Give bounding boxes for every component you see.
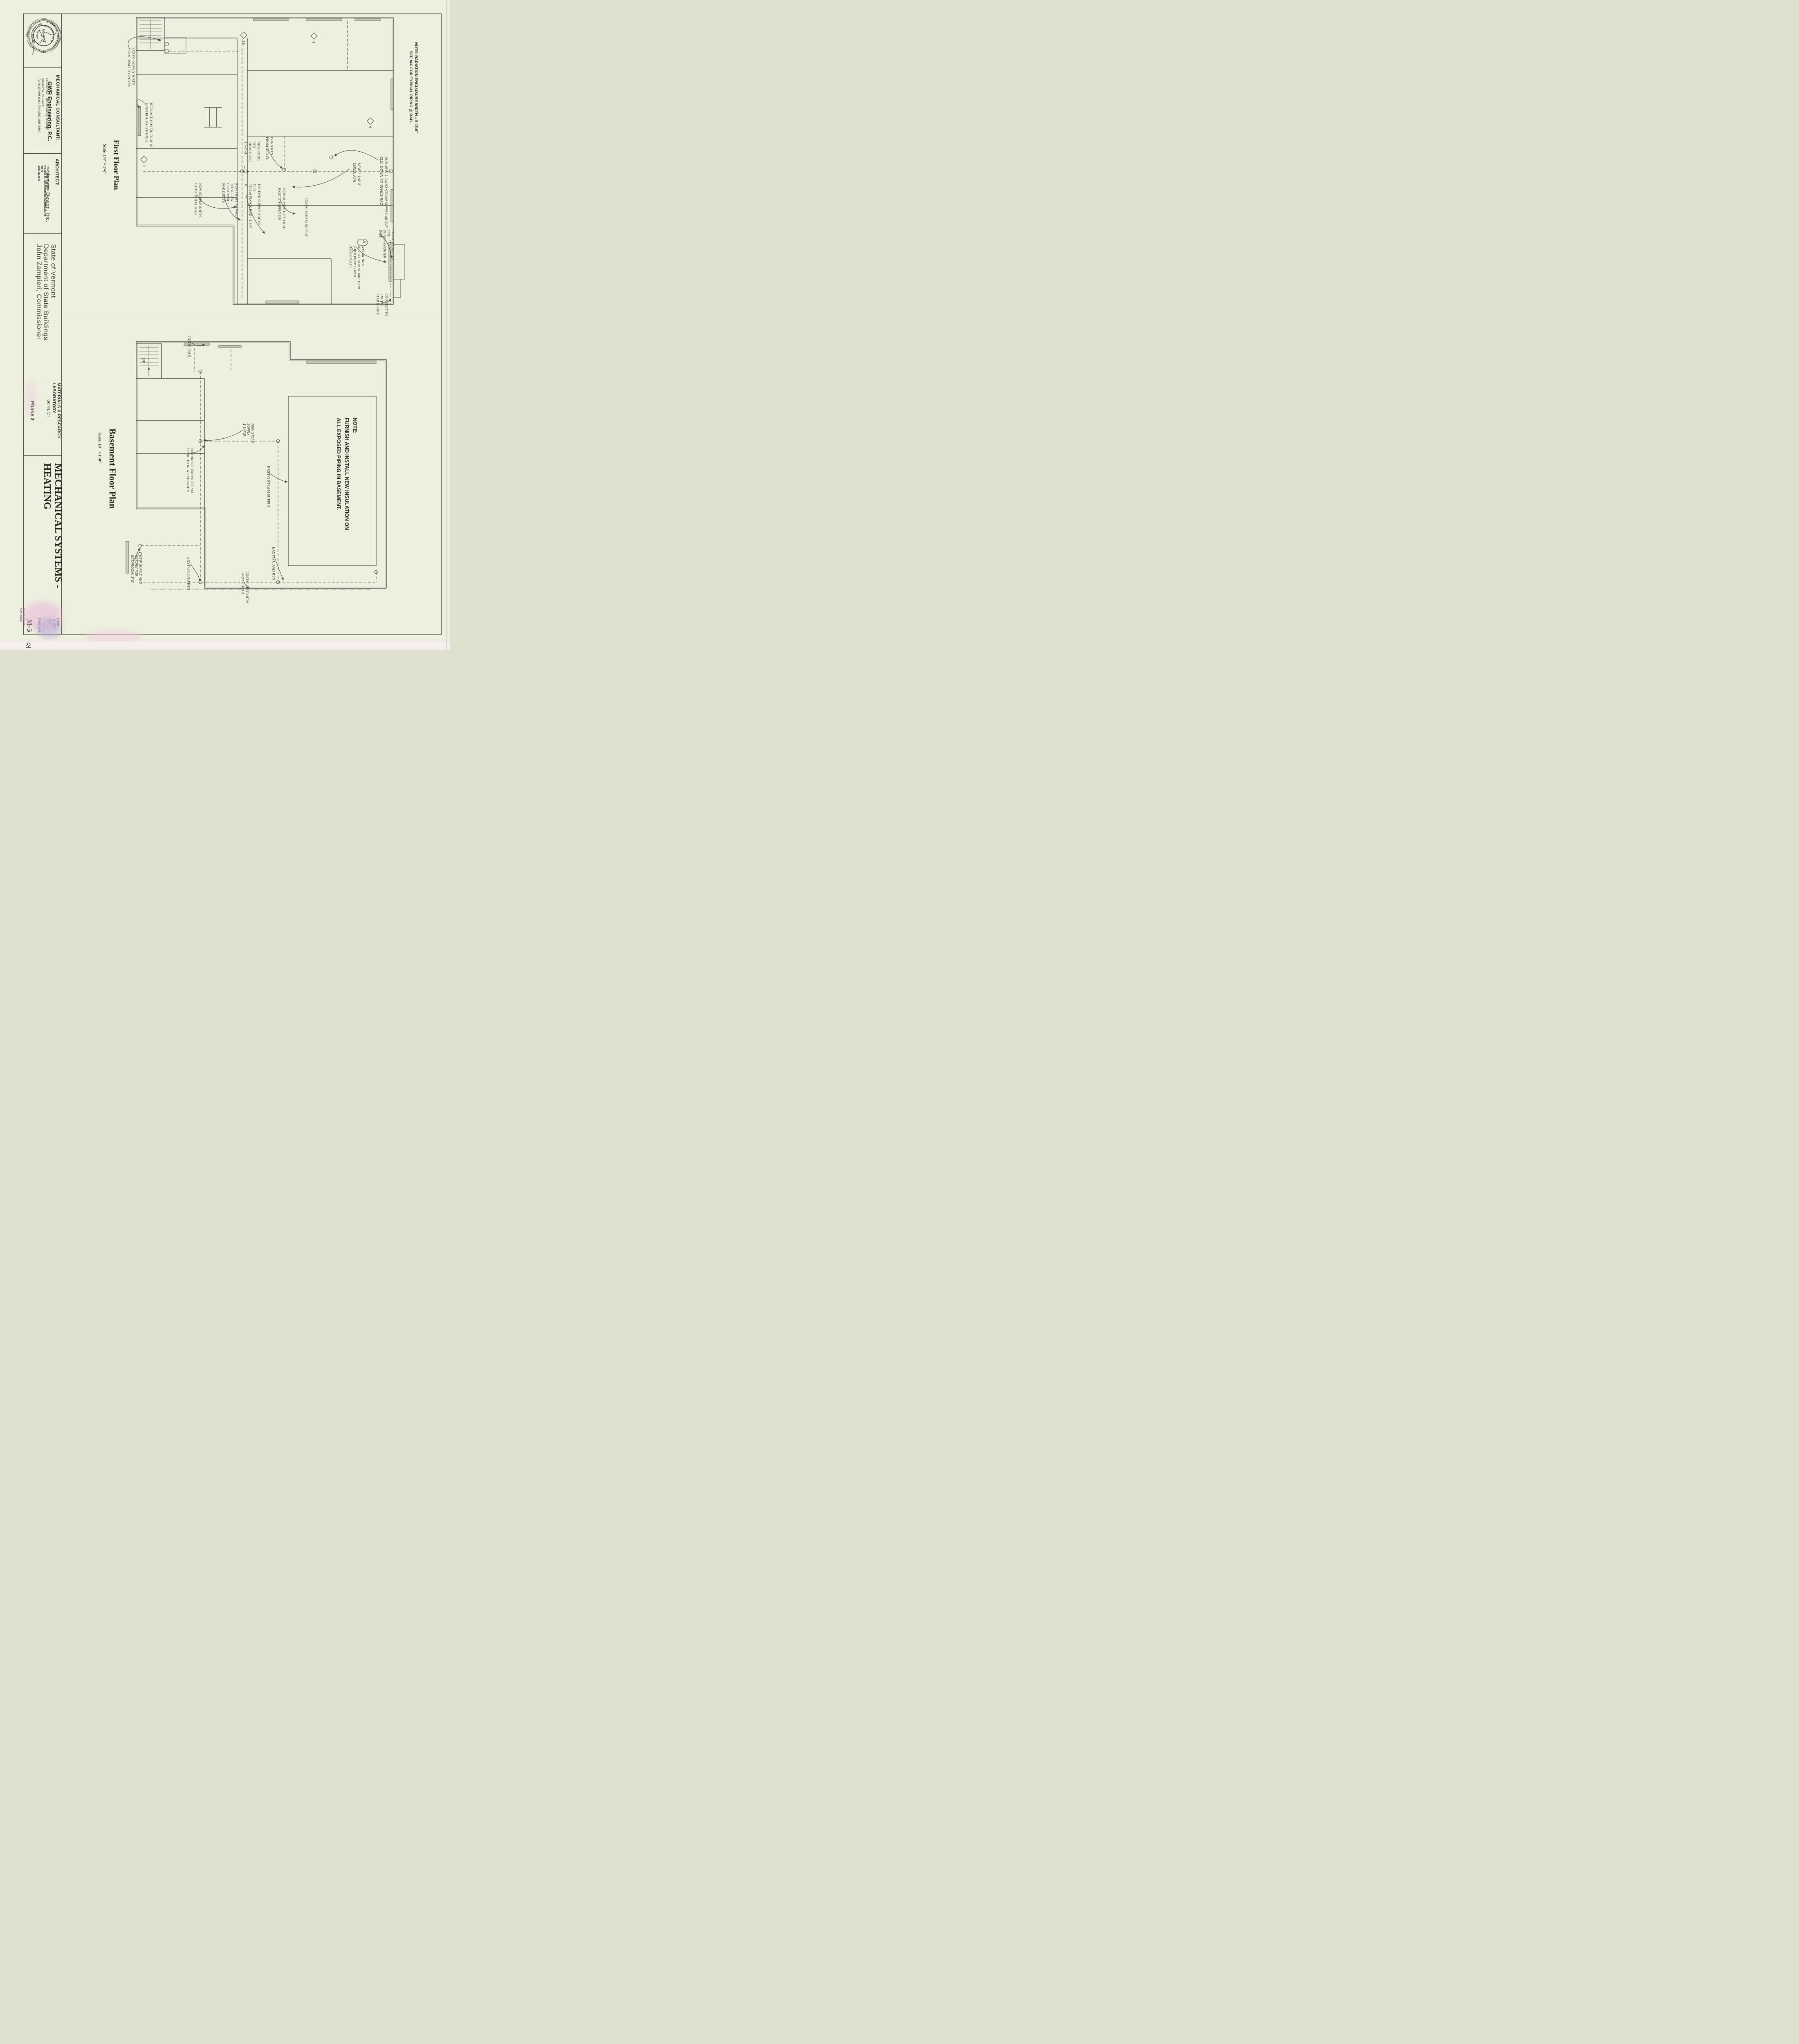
engineer-seal: STATE OF VERMONT PROFESSIONAL ENGINEER G… (26, 18, 62, 54)
project-location: Berlin, VT (46, 399, 51, 429)
ann-2nd-fl-rad: 2ND FL RAD. (187, 336, 191, 366)
ann-new-cond-hand: NEW 1 1/4"Ø COND. RTN. (352, 163, 361, 196)
scan-blob-lavender (37, 618, 62, 639)
radiators (126, 343, 376, 573)
tag-3-label: 3 (141, 164, 146, 171)
ann-reconnect: RECONNECT EXST'G STEAM PIPING TO NEW RAD… (186, 448, 194, 493)
consultant-heading: MECHANICAL CONSULTANT: (55, 75, 60, 145)
ann-run-new-hand: RUN NEW 1 1/4"Ø STEAM SUPPLY ABOVE CLG. … (379, 157, 388, 240)
scan-edge-strip (0, 641, 450, 650)
ann-new-steam: NEW STEAM SUPPLY 1 1/4"Ø (242, 424, 254, 448)
ann-new-supply-rad: NEW SUPPLY UP TO RAD EXST'G SUPPLY DN (278, 188, 286, 231)
leader-arrows (134, 342, 287, 587)
ann-cond-rtn-2: EXST'G COND RTN (271, 547, 276, 588)
architect-heading: ARCHITECT: (54, 159, 59, 204)
ann-cond-rtn-1: EXST'G COND RTN (186, 557, 191, 598)
ann-bm-exstg-steam: EXST'G STEAM SUPPLY (266, 466, 271, 513)
ann-new-cond: NEW COND RTN ABOVE CLG 1 1/4" Ø (244, 141, 261, 168)
walls (136, 341, 386, 588)
sheet-title: MECHANICAL SYSTEMS - HEATING (41, 463, 63, 607)
tag-5-label: 5, (352, 248, 356, 256)
cell-rule-1 (23, 67, 61, 68)
project-name: MATERIALS & RESEARCH LABORATORY (52, 383, 61, 454)
scan-mark (25, 642, 33, 649)
ann-bathroom: NEW SUPPLY AND RETURN FOR BATHROOM; 1"Ø (130, 555, 142, 590)
cell-rule-3 (23, 233, 61, 234)
architect-address: FRED KEIL, ARCHITECT P.O. BOX 55 - BOLTO… (37, 166, 49, 220)
basement-plan (61, 318, 442, 638)
tag-4-label: 4 (311, 41, 315, 47)
tag-18-label: 18 (240, 40, 245, 48)
ann-exstg-steam: EXST'G STEAM SUPPLY (304, 197, 309, 247)
ann-under-slab: EXST'G COND RTN UNDER SLAB (241, 572, 249, 607)
ann-run-tight: RUN TIGHT TO WALL TO ALLOW CLEARANCE FOR… (222, 183, 239, 222)
stair-up-label: UP (141, 358, 146, 367)
tag-a-label: A (362, 240, 366, 247)
ann-cond-rtn-2nd: COND RTN FROM 2ND FL (265, 137, 274, 162)
ann-special-note: SPECIAL NOTE: THIS SECTION OF RAD TO BE … (348, 245, 365, 299)
drawing-sheet: STATE OF VERMONT PROFESSIONAL ENGINEER G… (0, 0, 450, 650)
ann-new-supply-2nd: NEW SUPPLY & RTN UP TO 2ND FL RAD. (194, 183, 202, 223)
scan-edge-line (446, 0, 447, 650)
piping (139, 348, 378, 589)
ann-cover-butt: COVER TO BUTT TO SIDE OF NEW COUNTER BAS… (378, 230, 395, 264)
cell-rule-5 (23, 455, 61, 456)
ann-extend-supply: EXTEND SUPPLY ABOVE CLG TO 2nd FLOOR RAD… (244, 184, 261, 231)
ann-connect-exstg: CONNECT TO EXST'G STEAM LINE (376, 294, 389, 326)
ann-replace-cover: REPLACE COVER, TRAP & CONTROL VALVE ONLY (145, 103, 153, 150)
ann-supply-bsmt: EXST'G SUPPLY & RTN FROM BSMT TO 2ND FL (127, 47, 136, 118)
tag-9-label: 9 (367, 126, 372, 132)
owner-block: State of Vermont Department of State Bui… (35, 244, 57, 380)
consultant-address: PO Box 157 - The Creamery Building Shelb… (37, 78, 49, 163)
seal-registered: REGISTERED (36, 29, 41, 39)
scan-blob-pink-3 (25, 380, 37, 417)
